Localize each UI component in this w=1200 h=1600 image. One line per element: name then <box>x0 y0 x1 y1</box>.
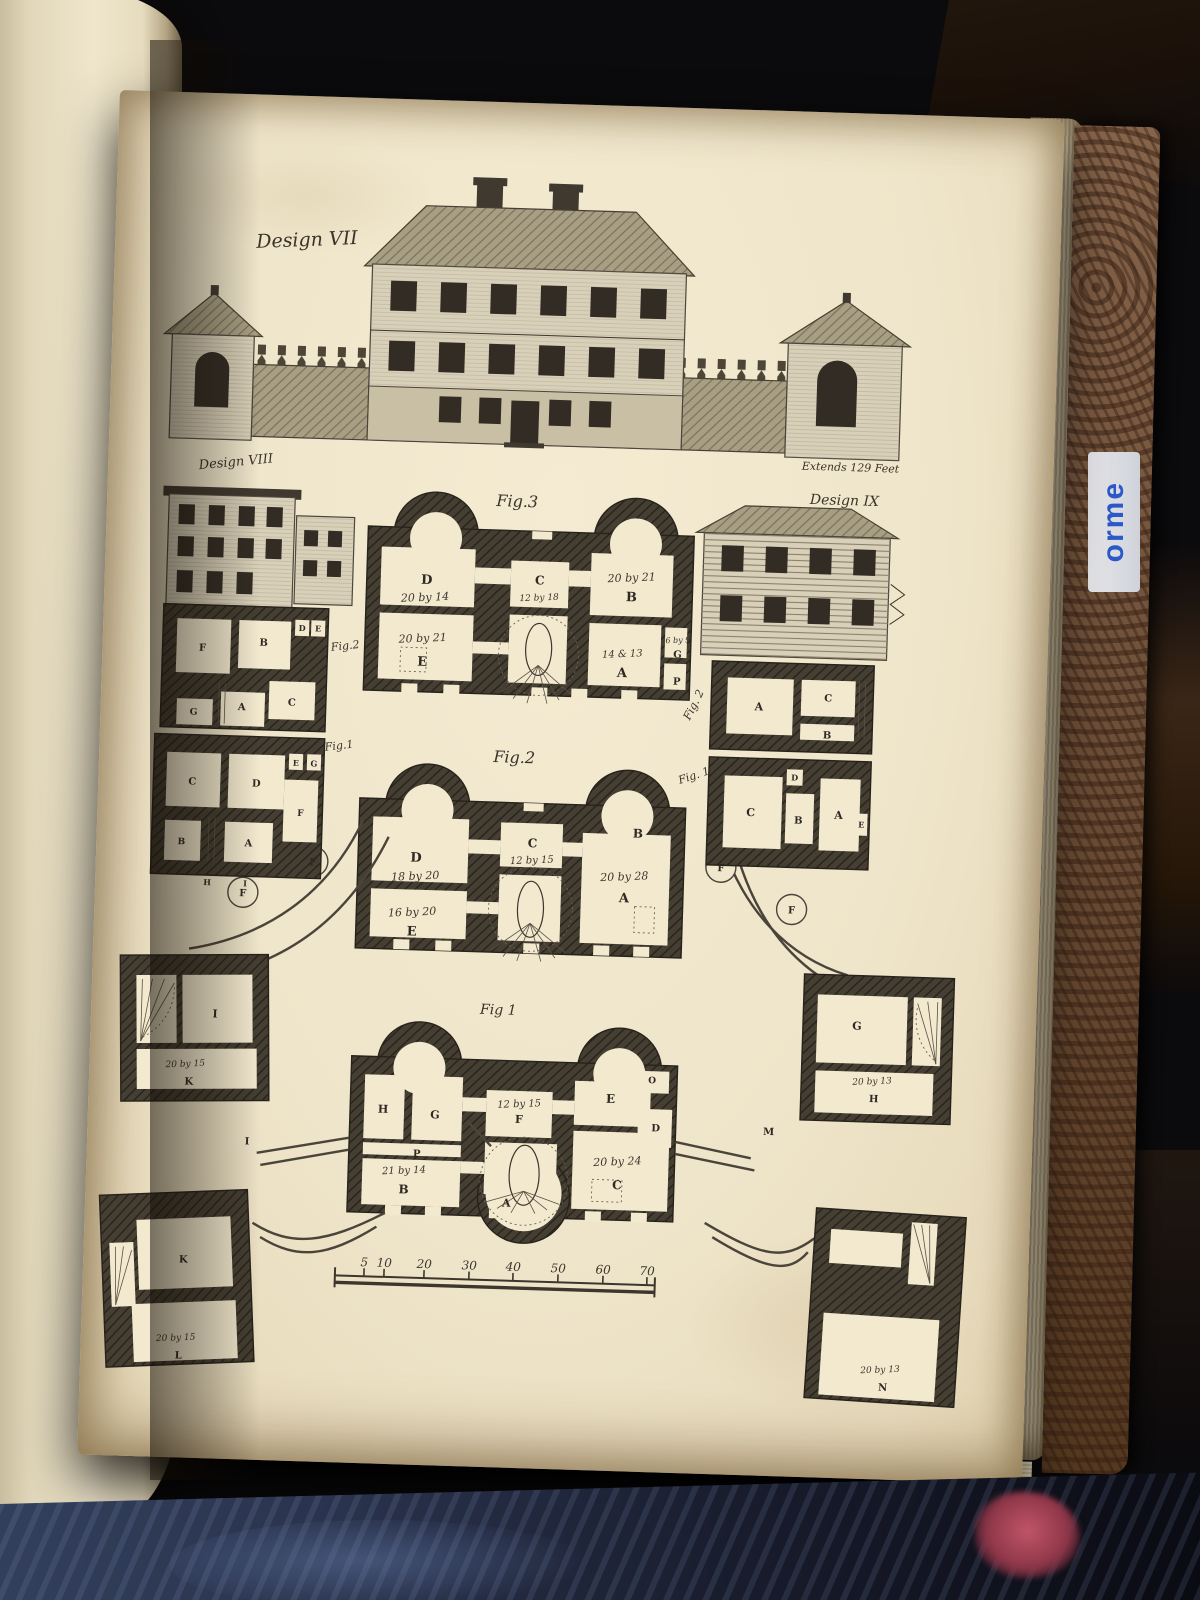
design9-plan-fig2 <box>710 661 875 754</box>
room-letter: N <box>878 1382 887 1393</box>
scale-number: 70 <box>639 1264 655 1278</box>
room-letter: B <box>794 816 803 827</box>
scale-number: 40 <box>504 1260 521 1275</box>
room-letter: B <box>626 590 637 605</box>
room-letter: E <box>315 623 321 633</box>
room-letter: H <box>869 1094 879 1105</box>
room-dimension: 12 by 18 <box>519 593 559 605</box>
pink-cloth <box>975 1492 1080 1578</box>
room-letter: E <box>293 758 299 768</box>
room-letter: A <box>833 809 843 822</box>
caption-fig3: Fig.3 <box>495 491 538 511</box>
room-letter: G <box>310 758 317 768</box>
room-dimension: 20 by 13 <box>851 1076 892 1088</box>
design9-plan-fig1 <box>706 757 871 870</box>
room-dimension: 6 by 9 <box>665 635 690 645</box>
room-letter: C <box>746 806 755 819</box>
scale-number: 10 <box>376 1256 392 1270</box>
scale-number: 20 <box>415 1257 432 1272</box>
room-letter: B <box>259 638 268 649</box>
caption-fig2-left: Fig.2 <box>329 638 360 654</box>
room-letter: D <box>299 623 306 633</box>
book-gutter-shadow <box>150 40 260 1480</box>
room-letter: E <box>417 655 427 670</box>
scale-number: 60 <box>595 1263 611 1277</box>
room-letter: C <box>824 693 832 704</box>
room-letter: C <box>288 698 296 709</box>
room-dimension: 16 by 20 <box>388 905 437 920</box>
fig1-plan <box>252 1017 821 1268</box>
room-letter: D <box>791 772 798 782</box>
room-letter: F <box>309 857 316 868</box>
caption-fig1-left: Fig.1 <box>323 738 354 754</box>
room-letter: A <box>616 666 628 681</box>
room-letter: F <box>788 905 795 916</box>
room-letter: C <box>612 1178 622 1192</box>
room-dimension: 20 by 13 <box>859 1365 900 1377</box>
scale-number: 50 <box>550 1261 566 1275</box>
photo-scene: orme <box>0 0 1200 1600</box>
pavilion-plan-lower-right <box>804 1208 966 1408</box>
room-letter: F <box>515 1113 523 1126</box>
room-letter: B <box>823 730 832 741</box>
room-letter: C <box>535 573 545 587</box>
room-letter: O <box>648 1076 656 1086</box>
room-letter: G <box>673 650 682 661</box>
caption-fig2: Fig.2 <box>492 747 535 767</box>
room-letter: C <box>528 836 538 850</box>
room-letter: A <box>501 1197 511 1210</box>
room-letter: P <box>413 1149 421 1160</box>
scale-bar: 510203040506070 <box>334 1254 655 1297</box>
room-dimension: 18 by 20 <box>391 869 440 884</box>
scale-number: 5 <box>360 1255 368 1269</box>
room-dimension: 20 by 24 <box>592 1154 642 1169</box>
room-dimension: 20 by 14 <box>400 590 450 605</box>
room-dimension: 20 by 28 <box>599 869 649 884</box>
room-letter: D <box>651 1123 660 1134</box>
room-dimension: 12 by 15 <box>510 854 554 867</box>
room-letter: B <box>398 1182 409 1196</box>
room-dimension: 20 by 21 <box>606 570 656 585</box>
room-letter: F <box>717 863 724 874</box>
room-letter: E <box>406 924 416 939</box>
caption-fig1: Fig 1 <box>479 1002 517 1019</box>
room-letter: H <box>378 1103 389 1116</box>
room-letter: E <box>858 820 864 830</box>
room-dimension: 14 & 13 <box>602 648 643 661</box>
room-letter: A <box>618 891 630 906</box>
room-letter: G <box>430 1108 440 1121</box>
spine-text: orme <box>1097 481 1131 562</box>
caption-design-vii: Design VII <box>255 227 359 253</box>
room-letter: D <box>410 851 422 866</box>
background-book-spine: orme <box>1088 452 1140 592</box>
room-letter: F <box>297 809 304 819</box>
room-letter: G <box>852 1019 862 1032</box>
room-letter: B <box>633 826 644 840</box>
room-dimension: 12 by 15 <box>497 1098 541 1111</box>
room-letter: M <box>763 1127 774 1138</box>
room-letter: A <box>753 700 763 713</box>
denim-knee-highlight <box>170 1520 590 1600</box>
design9-elevation <box>693 504 908 661</box>
caption-extends-note: Extends 129 Feet <box>801 460 900 476</box>
room-letter: P <box>673 677 681 688</box>
caption-design-ix: Design IX <box>809 492 881 510</box>
room-letter: D <box>421 573 433 588</box>
scale-number: 30 <box>461 1258 477 1272</box>
room-letter: E <box>606 1092 616 1106</box>
design7-elevation <box>161 168 915 461</box>
room-dimension: 20 by 21 <box>397 631 447 646</box>
room-dimension: 21 by 14 <box>381 1165 426 1178</box>
